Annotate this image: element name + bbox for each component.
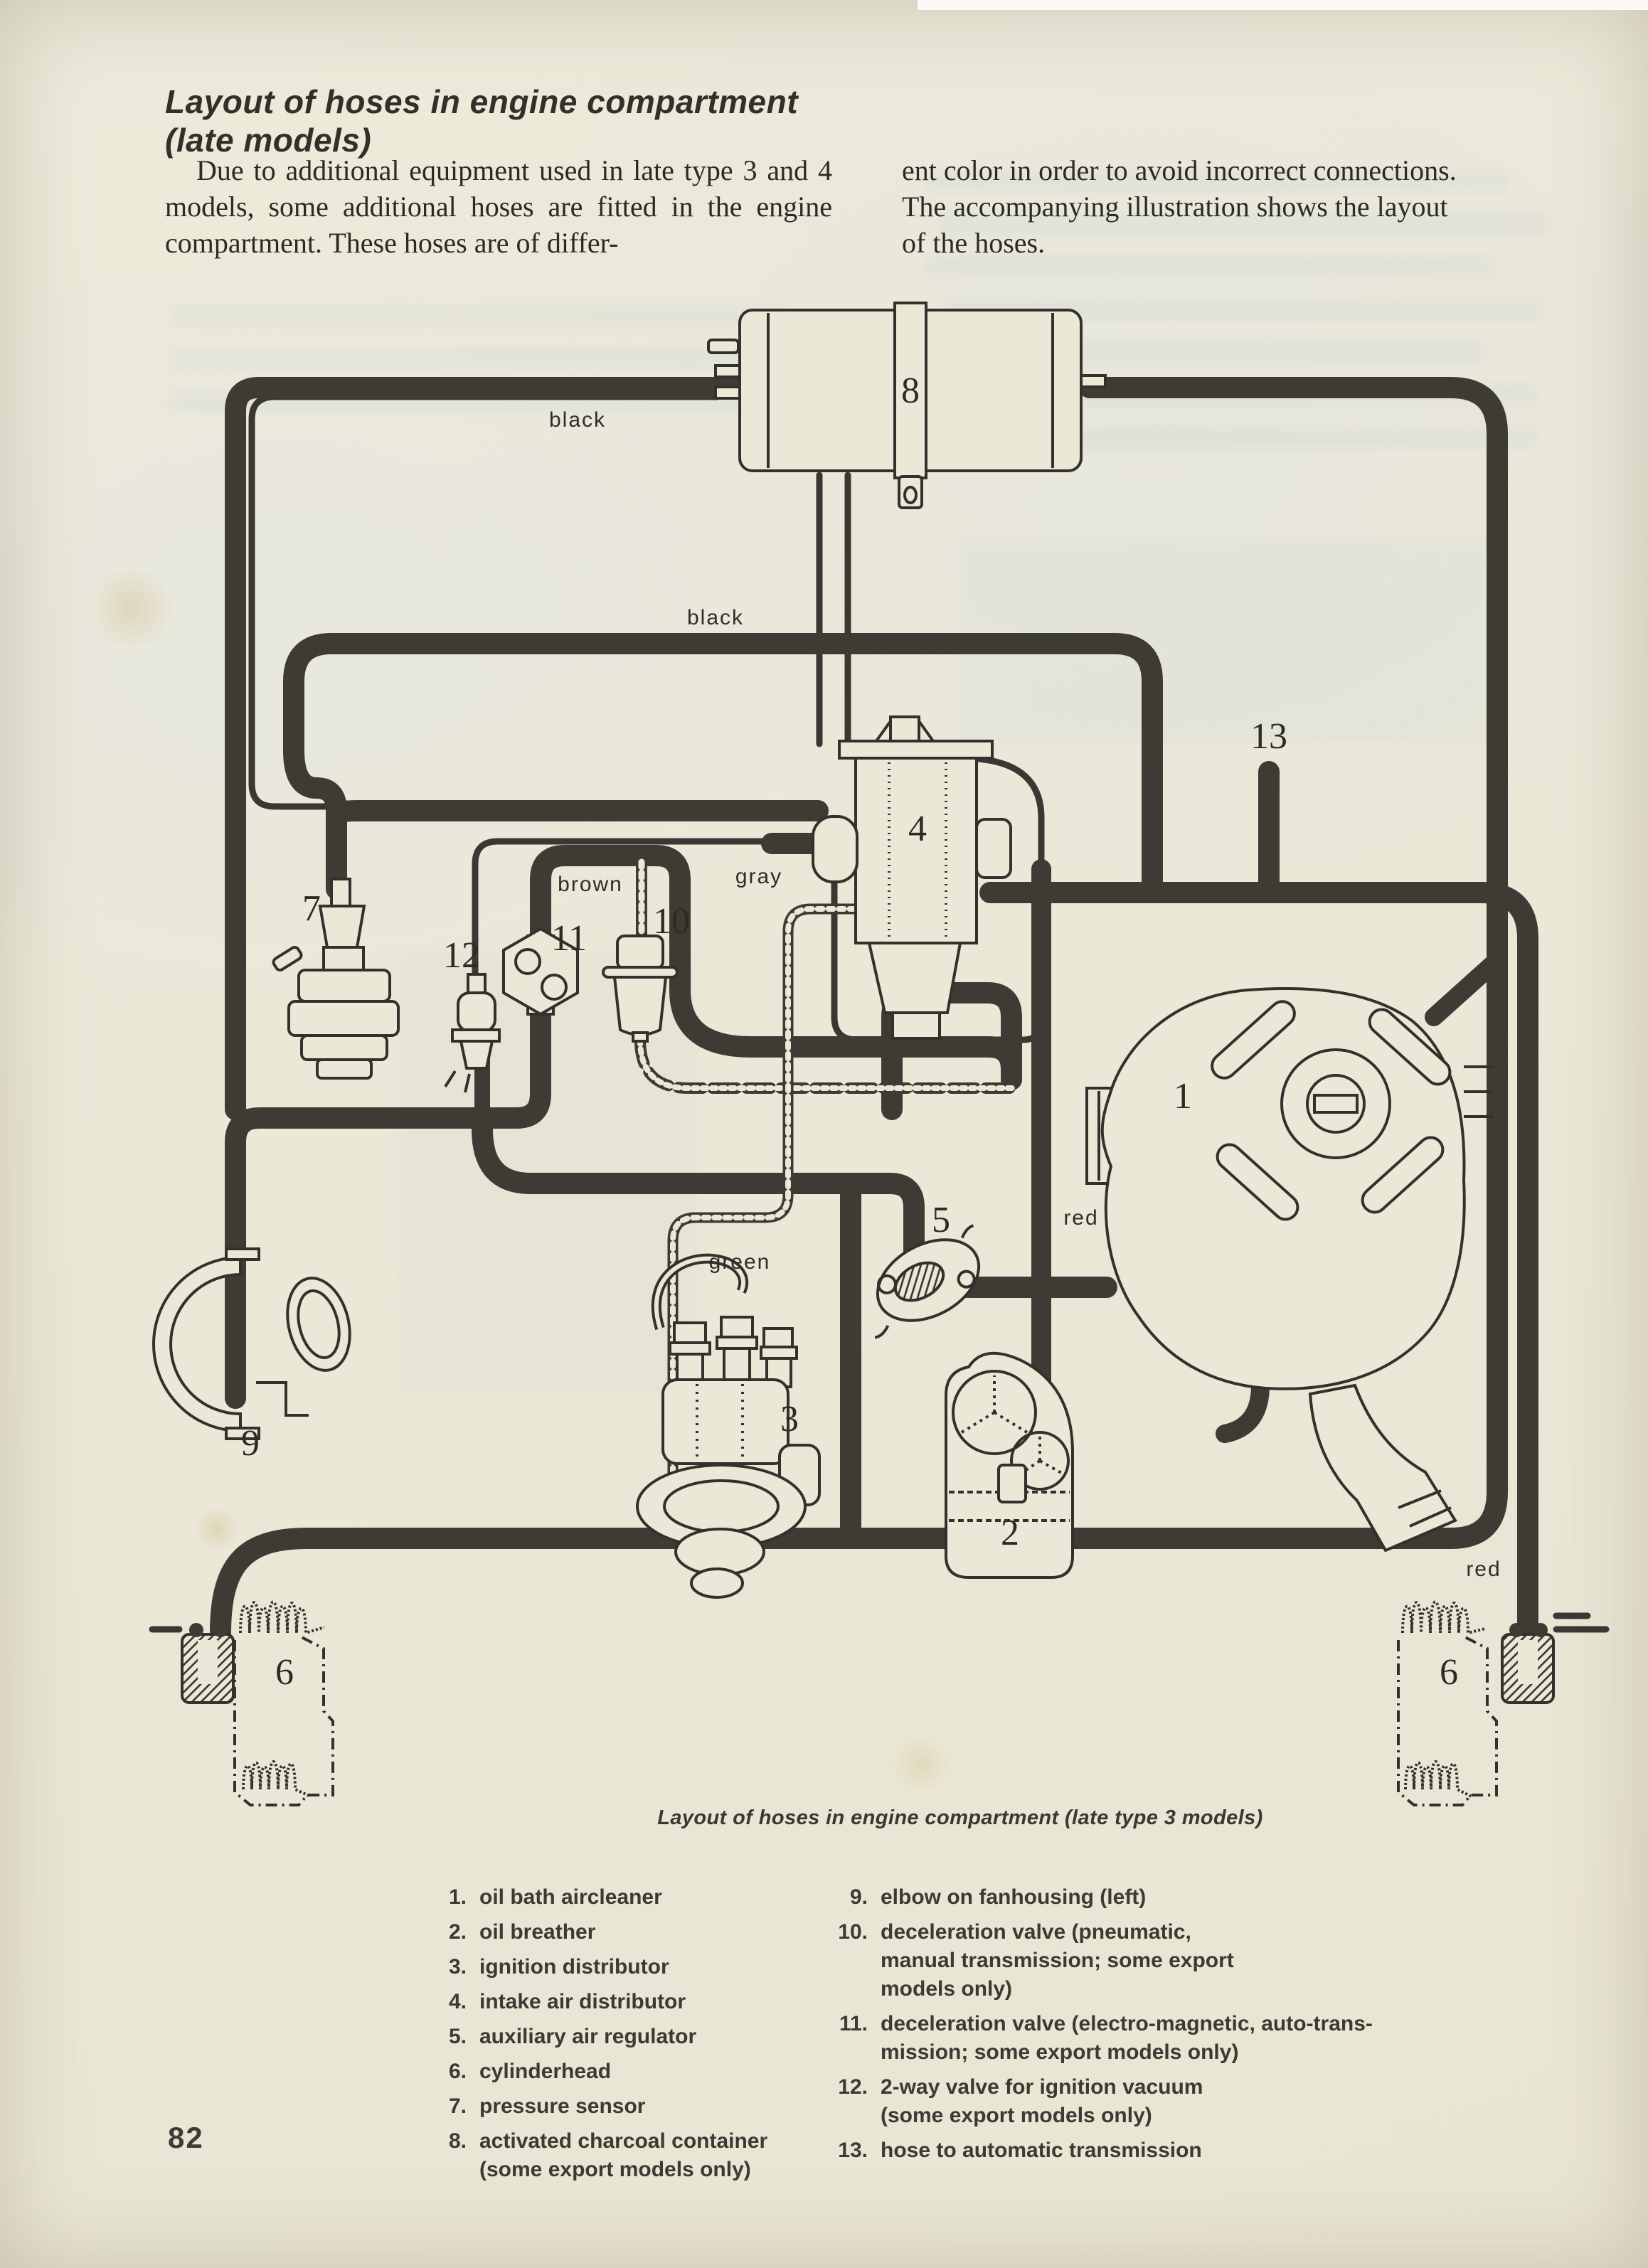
callout-1: 1	[1174, 1076, 1192, 1117]
legend-text: elbow on fanhousing (left)	[881, 1883, 1146, 1912]
legend-num: 1.	[425, 1883, 467, 1912]
component-cylinderhead-left	[182, 1602, 333, 1806]
thin-hose-left	[252, 397, 717, 806]
elbow-socket	[278, 1272, 358, 1377]
sensor-cap	[320, 906, 364, 947]
legend-num: 5.	[425, 2023, 467, 2051]
head-fins-bottom	[1405, 1762, 1472, 1796]
legend-text: activated charcoal container (some expor…	[479, 2127, 767, 2184]
head-fins-top	[1403, 1602, 1485, 1634]
label-red-upper: red	[1063, 1206, 1098, 1230]
legend-num: 2.	[425, 1918, 467, 1947]
callout-9: 9	[241, 1423, 260, 1464]
hose-to-intake-distributor	[336, 811, 818, 815]
head-fitting-flange-dot	[213, 1623, 228, 1637]
legend-item-13: 13.hose to automatic transmission	[826, 2136, 1438, 2165]
head-fins-bottom	[243, 1762, 311, 1796]
component-two-way-valve-12	[445, 974, 499, 1092]
valve10-flange	[603, 967, 677, 977]
valve10-stub	[633, 1033, 647, 1041]
distributor-top-flange	[839, 741, 992, 758]
legend-text: pressure sensor	[479, 2092, 645, 2121]
label-black-top: black	[549, 408, 606, 432]
callout-12: 12	[443, 935, 480, 976]
component-deceleration-valve-10	[603, 936, 677, 1041]
page-number: 82	[168, 2121, 204, 2155]
callout-2: 2	[1001, 1513, 1019, 1553]
callout-8: 8	[901, 371, 920, 411]
callout-5: 5	[932, 1200, 950, 1240]
legend-text: oil breather	[479, 1918, 595, 1947]
figure-caption: Layout of hoses in engine compartment (l…	[498, 1806, 1423, 1830]
legend-item-10: 10.deceleration valve (pneumatic, manual…	[826, 1918, 1438, 2003]
label-green: green	[709, 1250, 771, 1274]
callout-6-left: 6	[275, 1652, 294, 1693]
valve12-bulb	[458, 993, 495, 1031]
callout-10: 10	[653, 901, 690, 942]
legend-item-2: 2.oil breather	[425, 1918, 802, 1947]
legend-item-7: 7.pressure sensor	[425, 2092, 802, 2121]
legend-item-6: 6.cylinderhead	[425, 2057, 802, 2086]
hose-aircleaner-stub	[1225, 1385, 1260, 1434]
head-fins-top	[240, 1602, 324, 1634]
sensor-neck	[324, 947, 363, 970]
component-oil-bath-aircleaner	[1087, 989, 1494, 1550]
sensor-nipple	[272, 946, 302, 971]
legend-num: 11.	[826, 2010, 868, 2067]
head-fitting-flange-dot	[189, 1623, 203, 1637]
callout-13: 13	[1250, 716, 1287, 757]
callout-3: 3	[780, 1399, 799, 1439]
canister-nipple	[708, 340, 738, 353]
legend-column-left: 1.oil bath aircleaner 2.oil breather 3.i…	[425, 1883, 802, 2190]
legend-num: 6.	[425, 2057, 467, 2086]
aircleaner-hub-latch	[1314, 1095, 1357, 1112]
legend-text: auxiliary air regulator	[479, 2023, 696, 2051]
component-pressure-sensor	[272, 879, 398, 1078]
canister-port	[1080, 376, 1105, 387]
sensor-stub	[331, 879, 350, 906]
hose-valve12-branch	[482, 1129, 1107, 1287]
legend-text: 2-way valve for ignition vacuum (some ex…	[881, 2073, 1203, 2130]
legend-num: 4.	[425, 1988, 467, 2016]
valve12-spout	[445, 1071, 469, 1092]
legend-num: 8.	[425, 2127, 467, 2184]
legend-text: cylinderhead	[479, 2057, 611, 2086]
head-fitting-bore	[198, 1640, 218, 1684]
sensor-band	[302, 1035, 387, 1060]
elbow-tab	[226, 1249, 259, 1260]
callout-7: 7	[302, 888, 321, 929]
head-fitting-bore	[1518, 1640, 1538, 1684]
distributor-cap	[663, 1380, 788, 1464]
elbow-step	[256, 1383, 309, 1415]
head-fitting-flange-dot	[1509, 1623, 1524, 1637]
distributor-base	[893, 1013, 940, 1038]
distributor-left-boss	[813, 816, 857, 882]
distributor-body	[856, 758, 977, 943]
distributor-bracket	[891, 717, 919, 741]
distributor-taper	[869, 943, 960, 1013]
legend-item-1: 1.oil bath aircleaner	[425, 1883, 802, 1912]
legend-text: deceleration valve (pneumatic, manual tr…	[881, 1918, 1234, 2003]
legend-item-12: 12.2-way valve for ignition vacuum (some…	[826, 2073, 1438, 2130]
hose-black-mid	[294, 644, 1152, 889]
legend-num: 10.	[826, 1918, 868, 2003]
label-black-mid: black	[687, 606, 744, 629]
legend-item-8: 8.activated charcoal container (some exp…	[425, 2127, 802, 2184]
valve12-neck	[468, 974, 485, 994]
manual-page: Layout of hoses in engine compartment (l…	[0, 0, 1648, 2268]
valve10-body	[615, 977, 666, 1035]
callout-6-right: 6	[1440, 1652, 1458, 1693]
thin-ticks-right-head	[1556, 1616, 1606, 1629]
label-red-lower: red	[1466, 1558, 1501, 1581]
legend-text: deceleration valve (electro-magnetic, au…	[881, 2010, 1373, 2067]
legend-text: oil bath aircleaner	[479, 1883, 662, 1912]
legend-text: intake air distributor	[479, 1988, 686, 2016]
distributor-foot	[691, 1569, 743, 1597]
legend-num: 7.	[425, 2092, 467, 2121]
sensor-band	[299, 970, 390, 1001]
legend-text: ignition distributor	[479, 1953, 669, 1981]
legend-num: 12.	[826, 2073, 868, 2130]
valve12-hex	[461, 1041, 492, 1068]
sensor-foot	[317, 1060, 371, 1078]
distributor-towers	[670, 1317, 797, 1387]
legend-item-11: 11.deceleration valve (electro-magnetic,…	[826, 2010, 1438, 2067]
legend-num: 13.	[826, 2136, 868, 2165]
sensor-band	[289, 1001, 398, 1035]
aircleaner-outlet-funnel	[1310, 1385, 1455, 1550]
callout-4: 4	[908, 809, 927, 849]
legend-item-3: 3.ignition distributor	[425, 1953, 802, 1981]
distributor-right-boss	[977, 819, 1011, 878]
legend-item-5: 5.auxiliary air regulator	[425, 2023, 802, 2051]
label-brown: brown	[558, 873, 623, 896]
legend-text: hose to automatic transmission	[881, 2136, 1202, 2165]
breather-tab	[999, 1465, 1026, 1502]
valve12-collar	[452, 1030, 499, 1041]
legend-column-right: 9.elbow on fanhousing (left) 10.decelera…	[826, 1883, 1438, 2171]
component-fanhousing-elbow	[154, 1249, 359, 1439]
head-fitting-flange-dot	[1533, 1623, 1548, 1637]
callout-11: 11	[551, 918, 587, 959]
legend-num: 3.	[425, 1953, 467, 1981]
legend-item-9: 9.elbow on fanhousing (left)	[826, 1883, 1438, 1912]
label-gray: gray	[735, 865, 782, 888]
legend-item-4: 4.intake air distributor	[425, 1988, 802, 2016]
legend-num: 9.	[826, 1883, 868, 1912]
